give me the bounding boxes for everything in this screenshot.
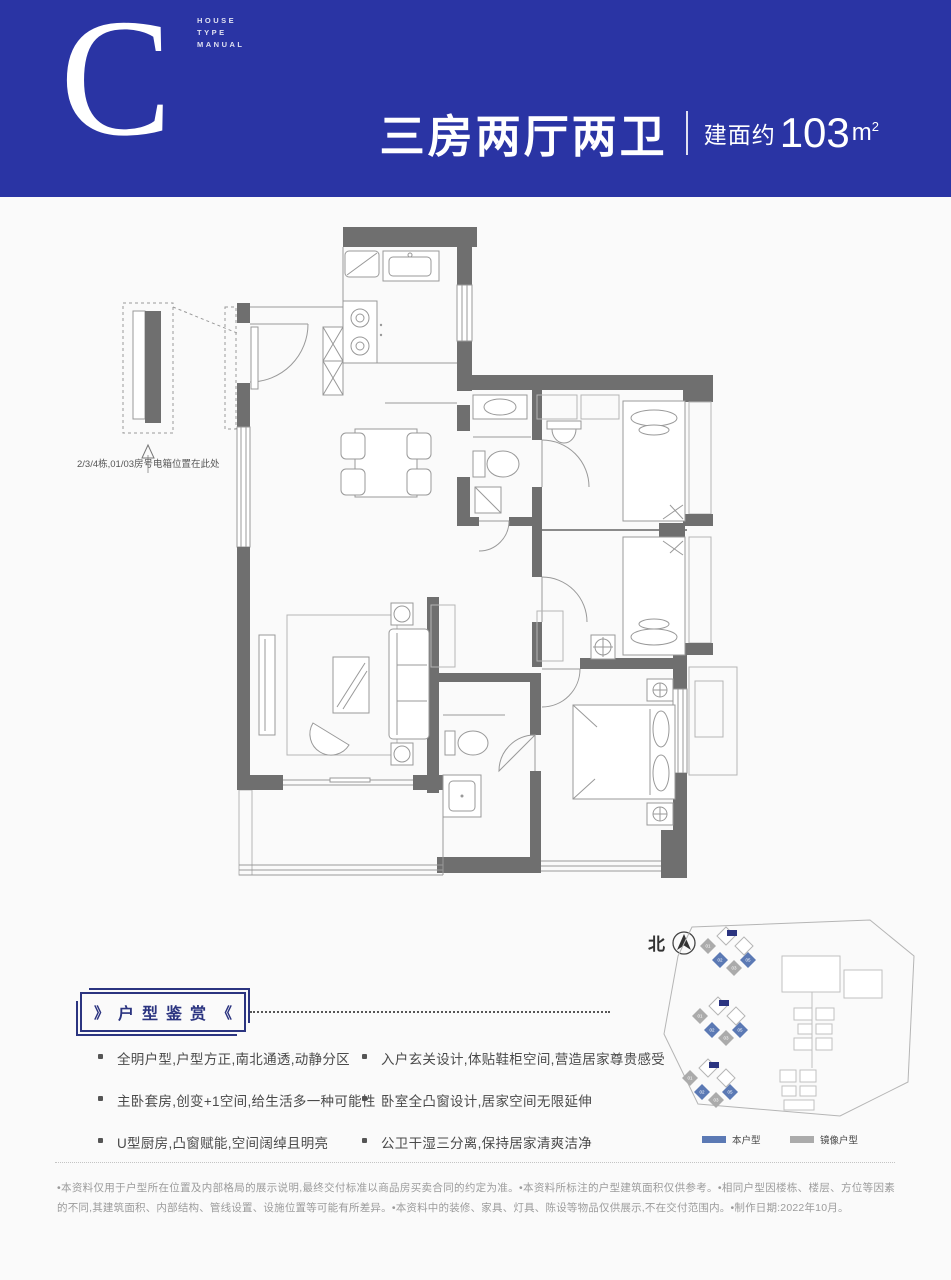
site-plan-legend: 本户型 镜像户型 — [702, 1135, 859, 1147]
feature-item: U型厨房,凸窗赋能,空间阔绰且明亮 — [98, 1132, 378, 1152]
nightstand — [647, 679, 673, 701]
dining-chair — [407, 433, 431, 459]
bullet-icon — [98, 1096, 103, 1101]
svg-text:02: 02 — [717, 958, 723, 963]
feature-text: U型厨房,凸窗赋能,空间阔绰且明亮 — [117, 1132, 328, 1152]
toilet — [445, 731, 488, 755]
site-plan: 北 01 02 03 — [632, 912, 924, 1162]
stove — [343, 301, 382, 363]
feature-text: 卧室全凸窗设计,居家空间无限延伸 — [381, 1090, 592, 1110]
feature-item: 主卧套房,创变+1空间,给生活多一种可能性 — [98, 1090, 378, 1110]
area-superscript: 2 — [872, 119, 879, 134]
wardrobe — [537, 395, 577, 419]
north-label: 北 — [648, 935, 665, 954]
svg-text:03: 03 — [713, 1098, 719, 1103]
bedroom-3 — [537, 537, 685, 661]
svg-text:02: 02 — [709, 1028, 715, 1033]
floor-drain — [591, 635, 615, 659]
page: C HOUSE TYPE MANUAL 三房两厅两卫 建面约 103 m2 — [0, 0, 951, 1280]
chevron-left-icon: 《 — [217, 1002, 232, 1023]
nightstand — [647, 803, 673, 825]
hall-bathroom — [473, 395, 531, 513]
svg-text:05: 05 — [727, 1090, 733, 1095]
section-badge: 》 户型鉴赏 《 — [80, 992, 246, 1032]
bullet-icon — [362, 1138, 367, 1143]
svg-text:05: 05 — [745, 958, 751, 963]
bedroom-2 — [537, 395, 685, 521]
electrical-box-callout: 2/3/4栋,01/03房号电箱位置在此处 — [77, 303, 237, 473]
side-table — [391, 603, 413, 625]
dining-chair — [341, 433, 365, 459]
bullet-icon — [98, 1054, 103, 1059]
living-room — [259, 603, 429, 765]
single-bed — [623, 401, 685, 521]
entry-foyer — [251, 327, 343, 395]
kitchen-sink — [383, 251, 439, 281]
legend-swatch-this — [702, 1136, 726, 1143]
svg-text:03: 03 — [731, 966, 737, 971]
tower-cluster: 01 02 03 05 — [682, 1059, 738, 1108]
tv-console — [259, 635, 275, 735]
svg-text:02: 02 — [699, 1090, 705, 1095]
feature-item: 全明户型,户型方正,南北通透,动静分区 — [98, 1048, 378, 1068]
single-bed — [623, 537, 685, 655]
side-table — [391, 743, 413, 765]
toilet — [473, 451, 519, 477]
house-type-letter: C — [60, 0, 172, 171]
title-block: 三房两厅两卫 建面约 103 m2 — [380, 100, 879, 165]
svg-text:01: 01 — [697, 1014, 703, 1019]
footer-divider — [55, 1162, 895, 1163]
floor-plan-drawing: 2/3/4栋,01/03房号电箱位置在此处 — [75, 215, 755, 915]
lounge-chair — [310, 723, 349, 755]
dining-chair — [341, 469, 365, 495]
feature-text: 公卫干湿三分离,保持居家清爽洁净 — [381, 1132, 592, 1152]
electrical-box — [251, 327, 258, 389]
svg-text:01: 01 — [705, 944, 711, 949]
tower-cluster: 01 02 03 05 — [700, 927, 756, 976]
bullet-icon — [98, 1138, 103, 1143]
site-plan-drawing: 北 01 02 03 — [632, 912, 924, 1162]
area-prefix: 建面约 — [704, 116, 776, 150]
svg-text:03: 03 — [723, 1036, 729, 1041]
master-bedroom — [573, 679, 675, 825]
desk-chair — [547, 421, 581, 443]
coffee-table — [333, 657, 369, 713]
manual-line: MANUAL — [197, 39, 245, 51]
feature-text: 入户玄关设计,体贴鞋柜空间,营造居家尊贵感受 — [381, 1048, 665, 1068]
dining-area — [341, 429, 431, 497]
tower-cluster: 01 02 03 05 — [692, 997, 748, 1046]
area-value: 103 — [780, 109, 850, 157]
bullet-icon — [362, 1054, 367, 1059]
area-unit: m2 — [852, 119, 879, 147]
bullet-icon — [362, 1096, 367, 1101]
sofa — [389, 629, 429, 739]
shoe-cabinet — [323, 327, 343, 395]
svg-text:01: 01 — [687, 1076, 693, 1081]
title-divider — [686, 111, 688, 155]
bath-vanity — [443, 775, 481, 817]
feature-text: 主卧套房,创变+1空间,给生活多一种可能性 — [117, 1090, 376, 1110]
wardrobe — [581, 395, 619, 419]
feature-column-left: 全明户型,户型方正,南北通透,动静分区 主卧套房,创变+1空间,给生活多一种可能… — [98, 1048, 378, 1174]
legend-label-mirror: 镜像户型 — [820, 1135, 859, 1147]
disclaimer-text: •本资料仅用于户型所在位置及内部格局的展示说明,最终交付标准以商品房买卖合同的约… — [57, 1178, 895, 1219]
master-bathroom — [443, 715, 505, 817]
section-badge-label: 户型鉴赏 — [118, 1000, 214, 1024]
manual-label: HOUSE TYPE MANUAL — [197, 15, 245, 51]
chevron-right-icon: 》 — [94, 1002, 109, 1023]
ac-platform — [689, 667, 737, 775]
header-banner: C HOUSE TYPE MANUAL 三房两厅两卫 建面约 103 m2 — [0, 0, 951, 197]
double-bed — [573, 705, 675, 799]
manual-line: HOUSE — [197, 15, 245, 27]
legend-swatch-mirror — [790, 1136, 814, 1143]
other-buildings — [780, 956, 882, 1110]
feature-text: 全明户型,户型方正,南北通透,动静分区 — [117, 1048, 350, 1068]
badge-dotted-line — [250, 1011, 610, 1013]
kitchen — [343, 251, 457, 403]
manual-line: TYPE — [197, 27, 245, 39]
legend-label-this: 本户型 — [732, 1135, 761, 1147]
callout-note: 2/3/4栋,01/03房号电箱位置在此处 — [77, 458, 220, 470]
floor-plan: 2/3/4栋,01/03房号电箱位置在此处 — [75, 215, 755, 915]
svg-text:05: 05 — [737, 1028, 743, 1033]
dining-chair — [407, 469, 431, 495]
page-title: 三房两厅两卫 — [380, 100, 668, 165]
